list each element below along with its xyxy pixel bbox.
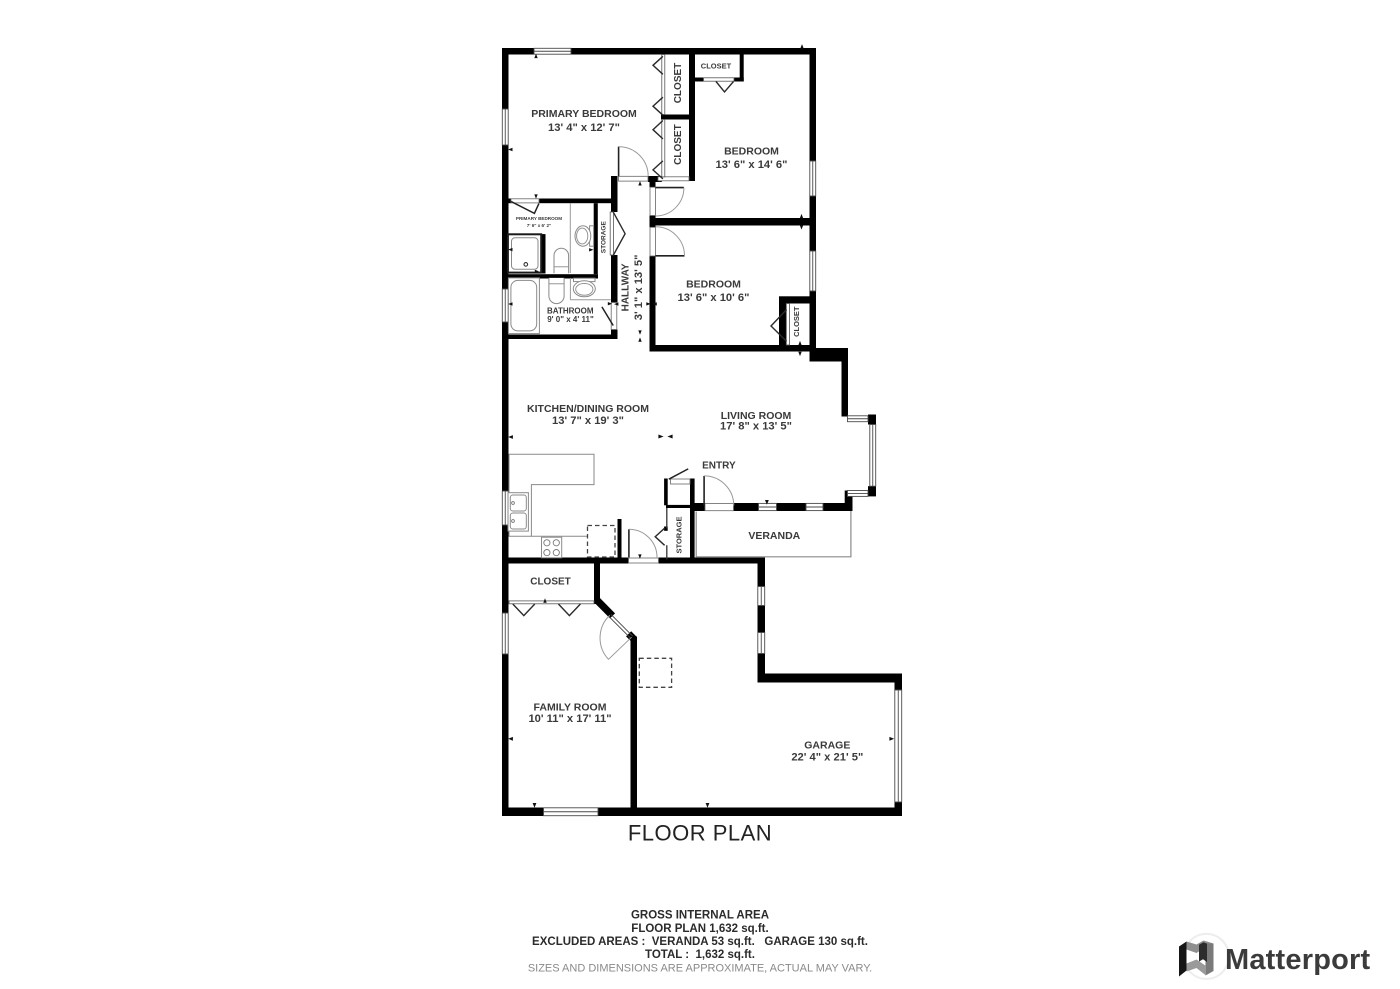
- svg-text:PRIMARY BEDROOM: PRIMARY BEDROOM: [516, 216, 562, 221]
- svg-text:Matterport: Matterport: [1225, 944, 1371, 976]
- svg-text:HALLWAY: HALLWAY: [621, 263, 632, 311]
- svg-text:13' 4" x 12' 7": 13' 4" x 12' 7": [548, 122, 620, 134]
- svg-text:22' 4" x 21' 5": 22' 4" x 21' 5": [791, 752, 863, 764]
- svg-text:FAMILY ROOM: FAMILY ROOM: [534, 701, 607, 713]
- svg-text:ENTRY: ENTRY: [702, 461, 736, 472]
- svg-text:BEDROOM: BEDROOM: [686, 279, 741, 291]
- svg-text:7' 6" x 6' 2": 7' 6" x 6' 2": [527, 223, 551, 228]
- svg-text:SIZES AND DIMENSIONS ARE APPRO: SIZES AND DIMENSIONS ARE APPROXIMATE, AC…: [528, 962, 872, 974]
- svg-text:CLOSET: CLOSET: [673, 124, 684, 165]
- svg-text:FLOOR PLAN 1,632 sq.ft.: FLOOR PLAN 1,632 sq.ft.: [631, 923, 768, 935]
- svg-text:GARAGE: GARAGE: [804, 739, 850, 751]
- svg-text:BEDROOM: BEDROOM: [724, 146, 779, 158]
- svg-text:17' 8" x 13' 5": 17' 8" x 13' 5": [720, 421, 792, 433]
- svg-text:VERANDA: VERANDA: [748, 530, 800, 542]
- svg-text:CLOSET: CLOSET: [792, 306, 801, 337]
- svg-text:CLOSET: CLOSET: [701, 62, 732, 71]
- svg-text:FLOOR PLAN: FLOOR PLAN: [628, 821, 772, 846]
- svg-text:TOTAL : 1,632 sq.ft.: TOTAL : 1,632 sq.ft.: [645, 949, 755, 961]
- svg-text:10' 11" x 17' 11": 10' 11" x 17' 11": [528, 713, 611, 725]
- svg-text:CLOSET: CLOSET: [530, 577, 571, 588]
- svg-text:13' 6" x 10' 6": 13' 6" x 10' 6": [678, 292, 750, 304]
- svg-text:13' 7" x 19' 3": 13' 7" x 19' 3": [552, 415, 624, 427]
- svg-text:3' 1" x 13' 5": 3' 1" x 13' 5": [633, 255, 645, 321]
- svg-text:STORAGE: STORAGE: [600, 221, 607, 254]
- svg-text:EXCLUDED AREAS : VERANDA 53 s: EXCLUDED AREAS : VERANDA 53 sq.ft. GARAG…: [532, 936, 868, 948]
- svg-text:KITCHEN/DINING ROOM: KITCHEN/DINING ROOM: [527, 403, 649, 415]
- svg-text:STORAGE: STORAGE: [674, 517, 683, 554]
- svg-text:13' 6" x 14' 6": 13' 6" x 14' 6": [716, 159, 788, 171]
- svg-text:GROSS INTERNAL AREA: GROSS INTERNAL AREA: [631, 910, 769, 922]
- svg-text:9' 0" x 4' 11": 9' 0" x 4' 11": [547, 315, 594, 324]
- svg-text:CLOSET: CLOSET: [673, 63, 684, 104]
- svg-text:PRIMARY BEDROOM: PRIMARY BEDROOM: [531, 108, 637, 120]
